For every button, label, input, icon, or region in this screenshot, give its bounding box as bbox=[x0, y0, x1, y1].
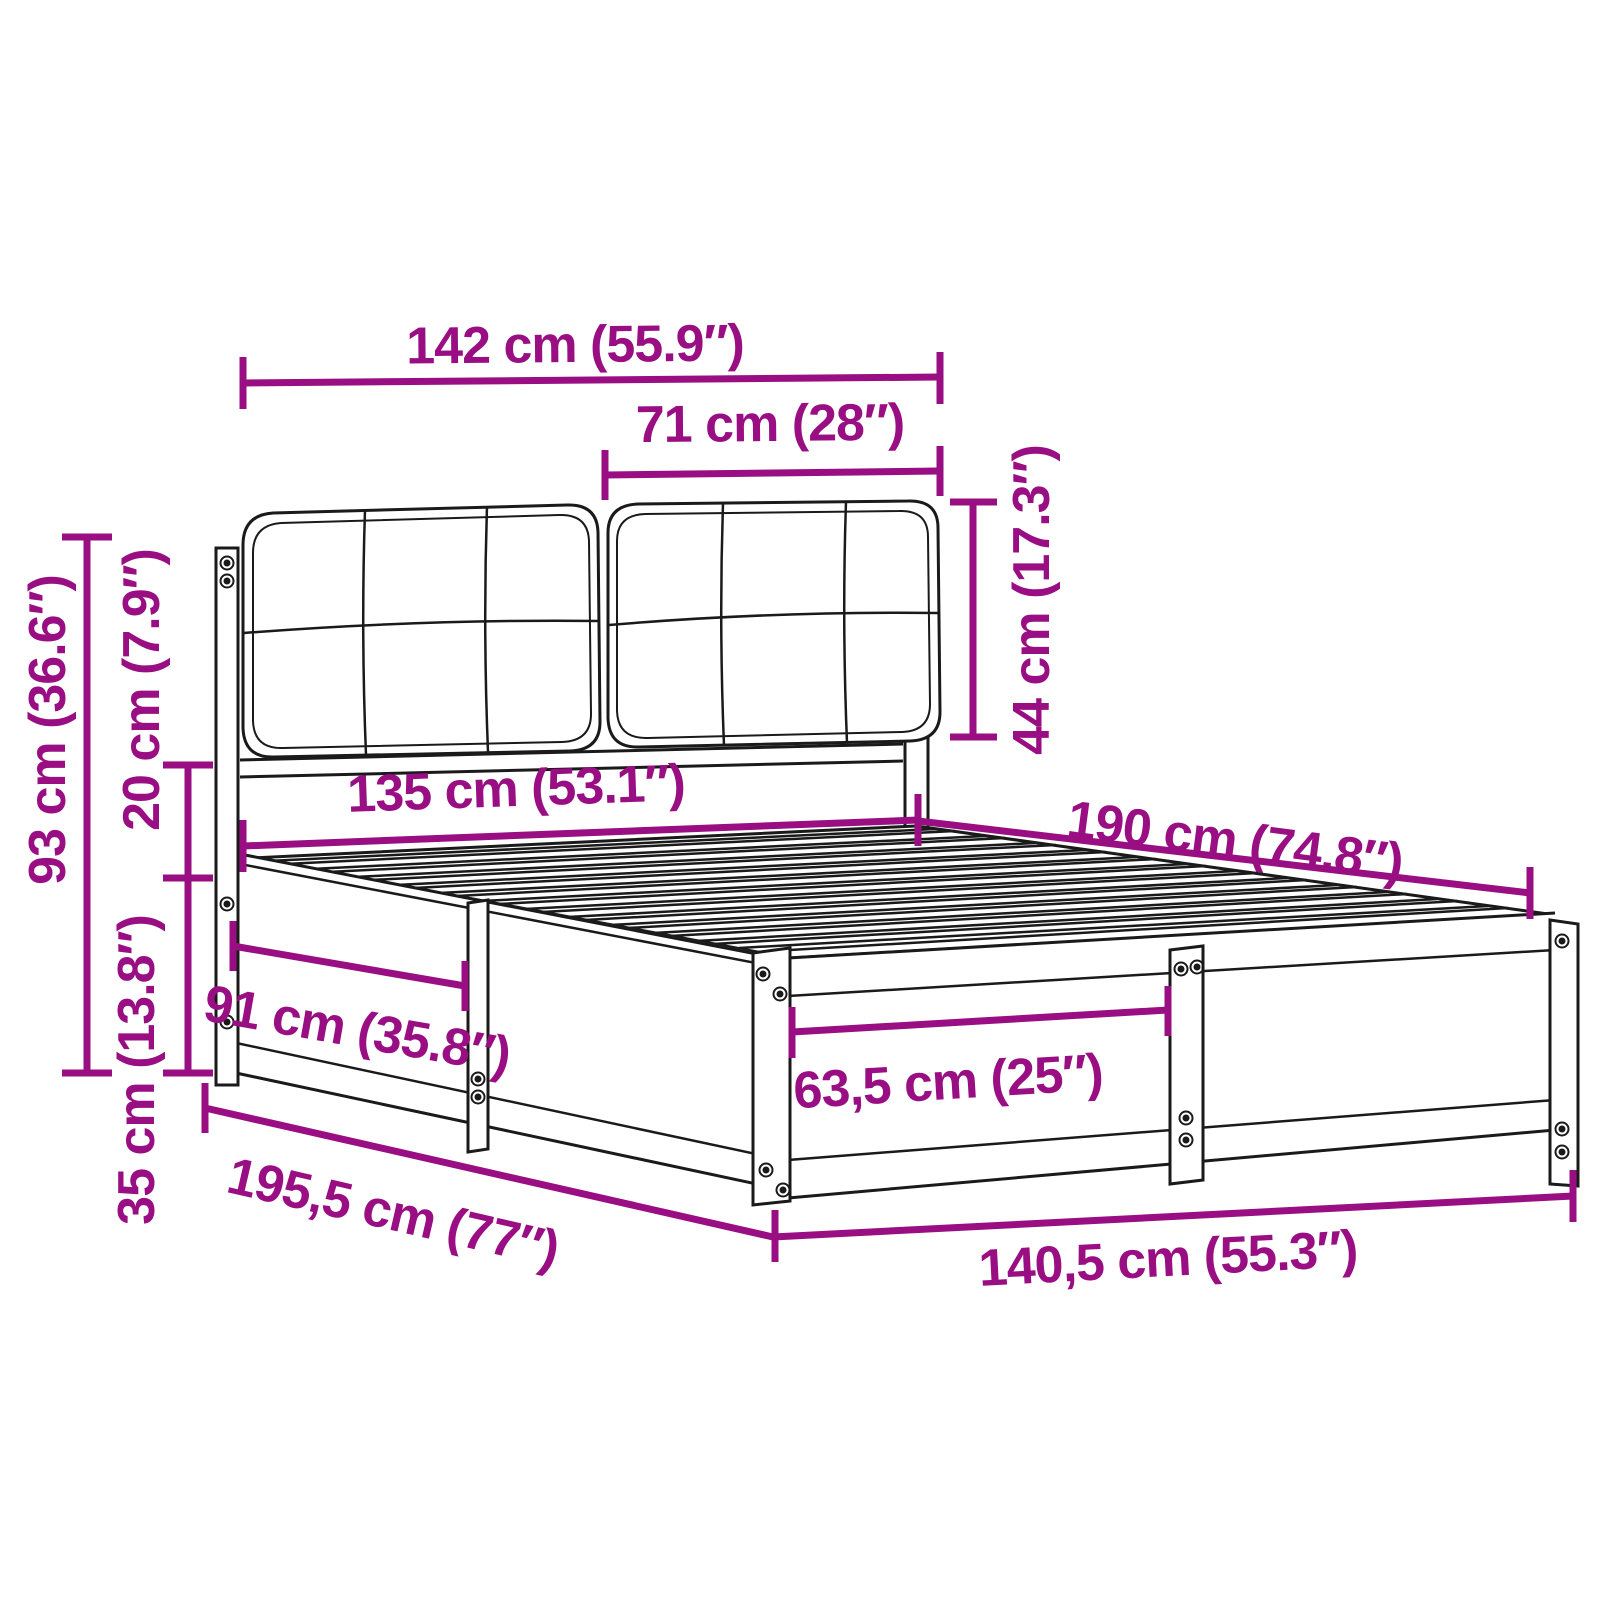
dim-line-cushion-width bbox=[605, 446, 940, 500]
dim-label-cushion-height: 44 cm (17.3″) bbox=[1006, 445, 1058, 755]
dim-line-cushion-height bbox=[950, 502, 997, 737]
foot-mid-post bbox=[1170, 946, 1204, 1184]
right-corner-post bbox=[1550, 920, 1578, 1186]
dim-label-headboard-width: 142 cm (55.9″) bbox=[406, 318, 744, 373]
bed-frame-drawing bbox=[0, 0, 1600, 1600]
dim-label-base-height: 35 cm (13.8″) bbox=[111, 915, 163, 1225]
dim-label-mattress-width: 135 cm (53.1″) bbox=[346, 757, 685, 821]
dim-label-rail-gap-height: 20 cm (7.9″) bbox=[116, 549, 168, 831]
front-left-post bbox=[753, 948, 790, 1205]
dim-label-headboard-height: 93 cm (36.6″) bbox=[22, 575, 74, 885]
headboard-cushion-left bbox=[243, 505, 600, 757]
dim-label-cushion-width: 71 cm (28″) bbox=[636, 397, 905, 451]
diagram-canvas: 142 cm (55.9″) 71 cm (28″) 44 cm (17.3″)… bbox=[0, 0, 1600, 1600]
headboard-cushion-right bbox=[608, 501, 940, 747]
